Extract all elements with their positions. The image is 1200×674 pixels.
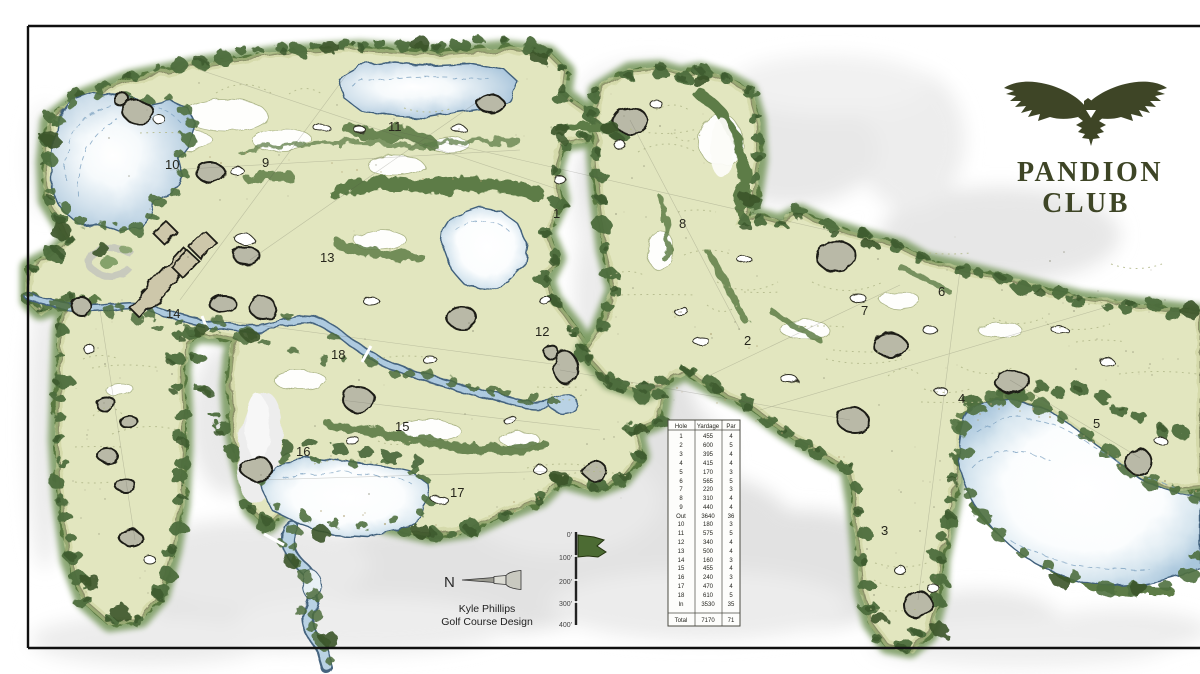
svg-text:Golf Course Design: Golf Course Design: [441, 616, 533, 628]
svg-text:3640: 3640: [701, 514, 715, 520]
svg-text:415: 415: [703, 461, 714, 467]
svg-text:2: 2: [744, 333, 751, 348]
svg-text:0': 0': [567, 532, 572, 539]
svg-text:13: 13: [678, 549, 685, 555]
svg-text:400': 400': [559, 622, 572, 629]
svg-text:4: 4: [958, 391, 965, 406]
svg-text:17: 17: [678, 584, 685, 590]
svg-text:200': 200': [559, 579, 572, 586]
svg-text:1: 1: [553, 206, 560, 221]
svg-text:8: 8: [679, 216, 686, 231]
svg-text:PANDION: PANDION: [1017, 157, 1163, 188]
svg-text:220: 220: [703, 487, 714, 493]
svg-text:Kyle Phillips: Kyle Phillips: [459, 603, 516, 615]
svg-text:15: 15: [395, 419, 409, 434]
svg-text:18: 18: [331, 347, 345, 362]
svg-text:565: 565: [703, 479, 714, 485]
svg-text:240: 240: [703, 575, 714, 581]
svg-text:3530: 3530: [701, 602, 715, 608]
svg-text:10: 10: [165, 157, 179, 172]
svg-text:16: 16: [296, 444, 310, 459]
svg-text:7: 7: [861, 303, 868, 318]
svg-text:395: 395: [703, 452, 714, 458]
svg-text:16: 16: [678, 575, 685, 581]
svg-text:In: In: [678, 602, 683, 608]
svg-text:610: 610: [703, 593, 714, 599]
svg-text:300': 300': [559, 601, 572, 608]
svg-text:13: 13: [320, 250, 334, 265]
svg-text:12: 12: [535, 324, 549, 339]
svg-text:160: 160: [703, 558, 714, 564]
svg-text:470: 470: [703, 584, 714, 590]
svg-text:CLUB: CLUB: [1042, 188, 1130, 219]
svg-text:71: 71: [728, 618, 735, 624]
svg-text:Yardage: Yardage: [697, 424, 720, 430]
svg-text:12: 12: [678, 540, 685, 546]
svg-text:440: 440: [703, 505, 714, 511]
svg-text:5: 5: [1093, 416, 1100, 431]
svg-text:Total: Total: [675, 618, 688, 624]
svg-text:Par: Par: [726, 424, 735, 430]
svg-text:170: 170: [703, 470, 714, 476]
svg-text:14: 14: [166, 306, 180, 321]
svg-text:N: N: [444, 574, 455, 591]
svg-text:11: 11: [388, 119, 402, 134]
svg-text:35: 35: [728, 602, 735, 608]
svg-text:18: 18: [678, 593, 685, 599]
svg-text:180: 180: [703, 522, 714, 528]
svg-text:9: 9: [262, 155, 269, 170]
svg-text:340: 340: [703, 540, 714, 546]
svg-text:455: 455: [703, 434, 714, 440]
svg-text:15: 15: [678, 566, 685, 572]
svg-text:575: 575: [703, 531, 714, 537]
svg-text:3: 3: [881, 523, 888, 538]
svg-text:11: 11: [678, 531, 685, 537]
svg-text:6: 6: [938, 284, 945, 299]
svg-text:500: 500: [703, 549, 714, 555]
svg-text:Out: Out: [676, 514, 686, 520]
svg-text:600: 600: [703, 443, 714, 449]
svg-text:310: 310: [703, 496, 714, 502]
svg-text:36: 36: [728, 514, 735, 520]
svg-text:455: 455: [703, 566, 714, 572]
svg-text:100': 100': [559, 555, 572, 562]
svg-text:10: 10: [678, 522, 685, 528]
svg-text:Hole: Hole: [675, 424, 688, 430]
svg-text:14: 14: [678, 558, 685, 564]
svg-text:17: 17: [450, 485, 464, 500]
svg-text:7170: 7170: [701, 618, 715, 624]
